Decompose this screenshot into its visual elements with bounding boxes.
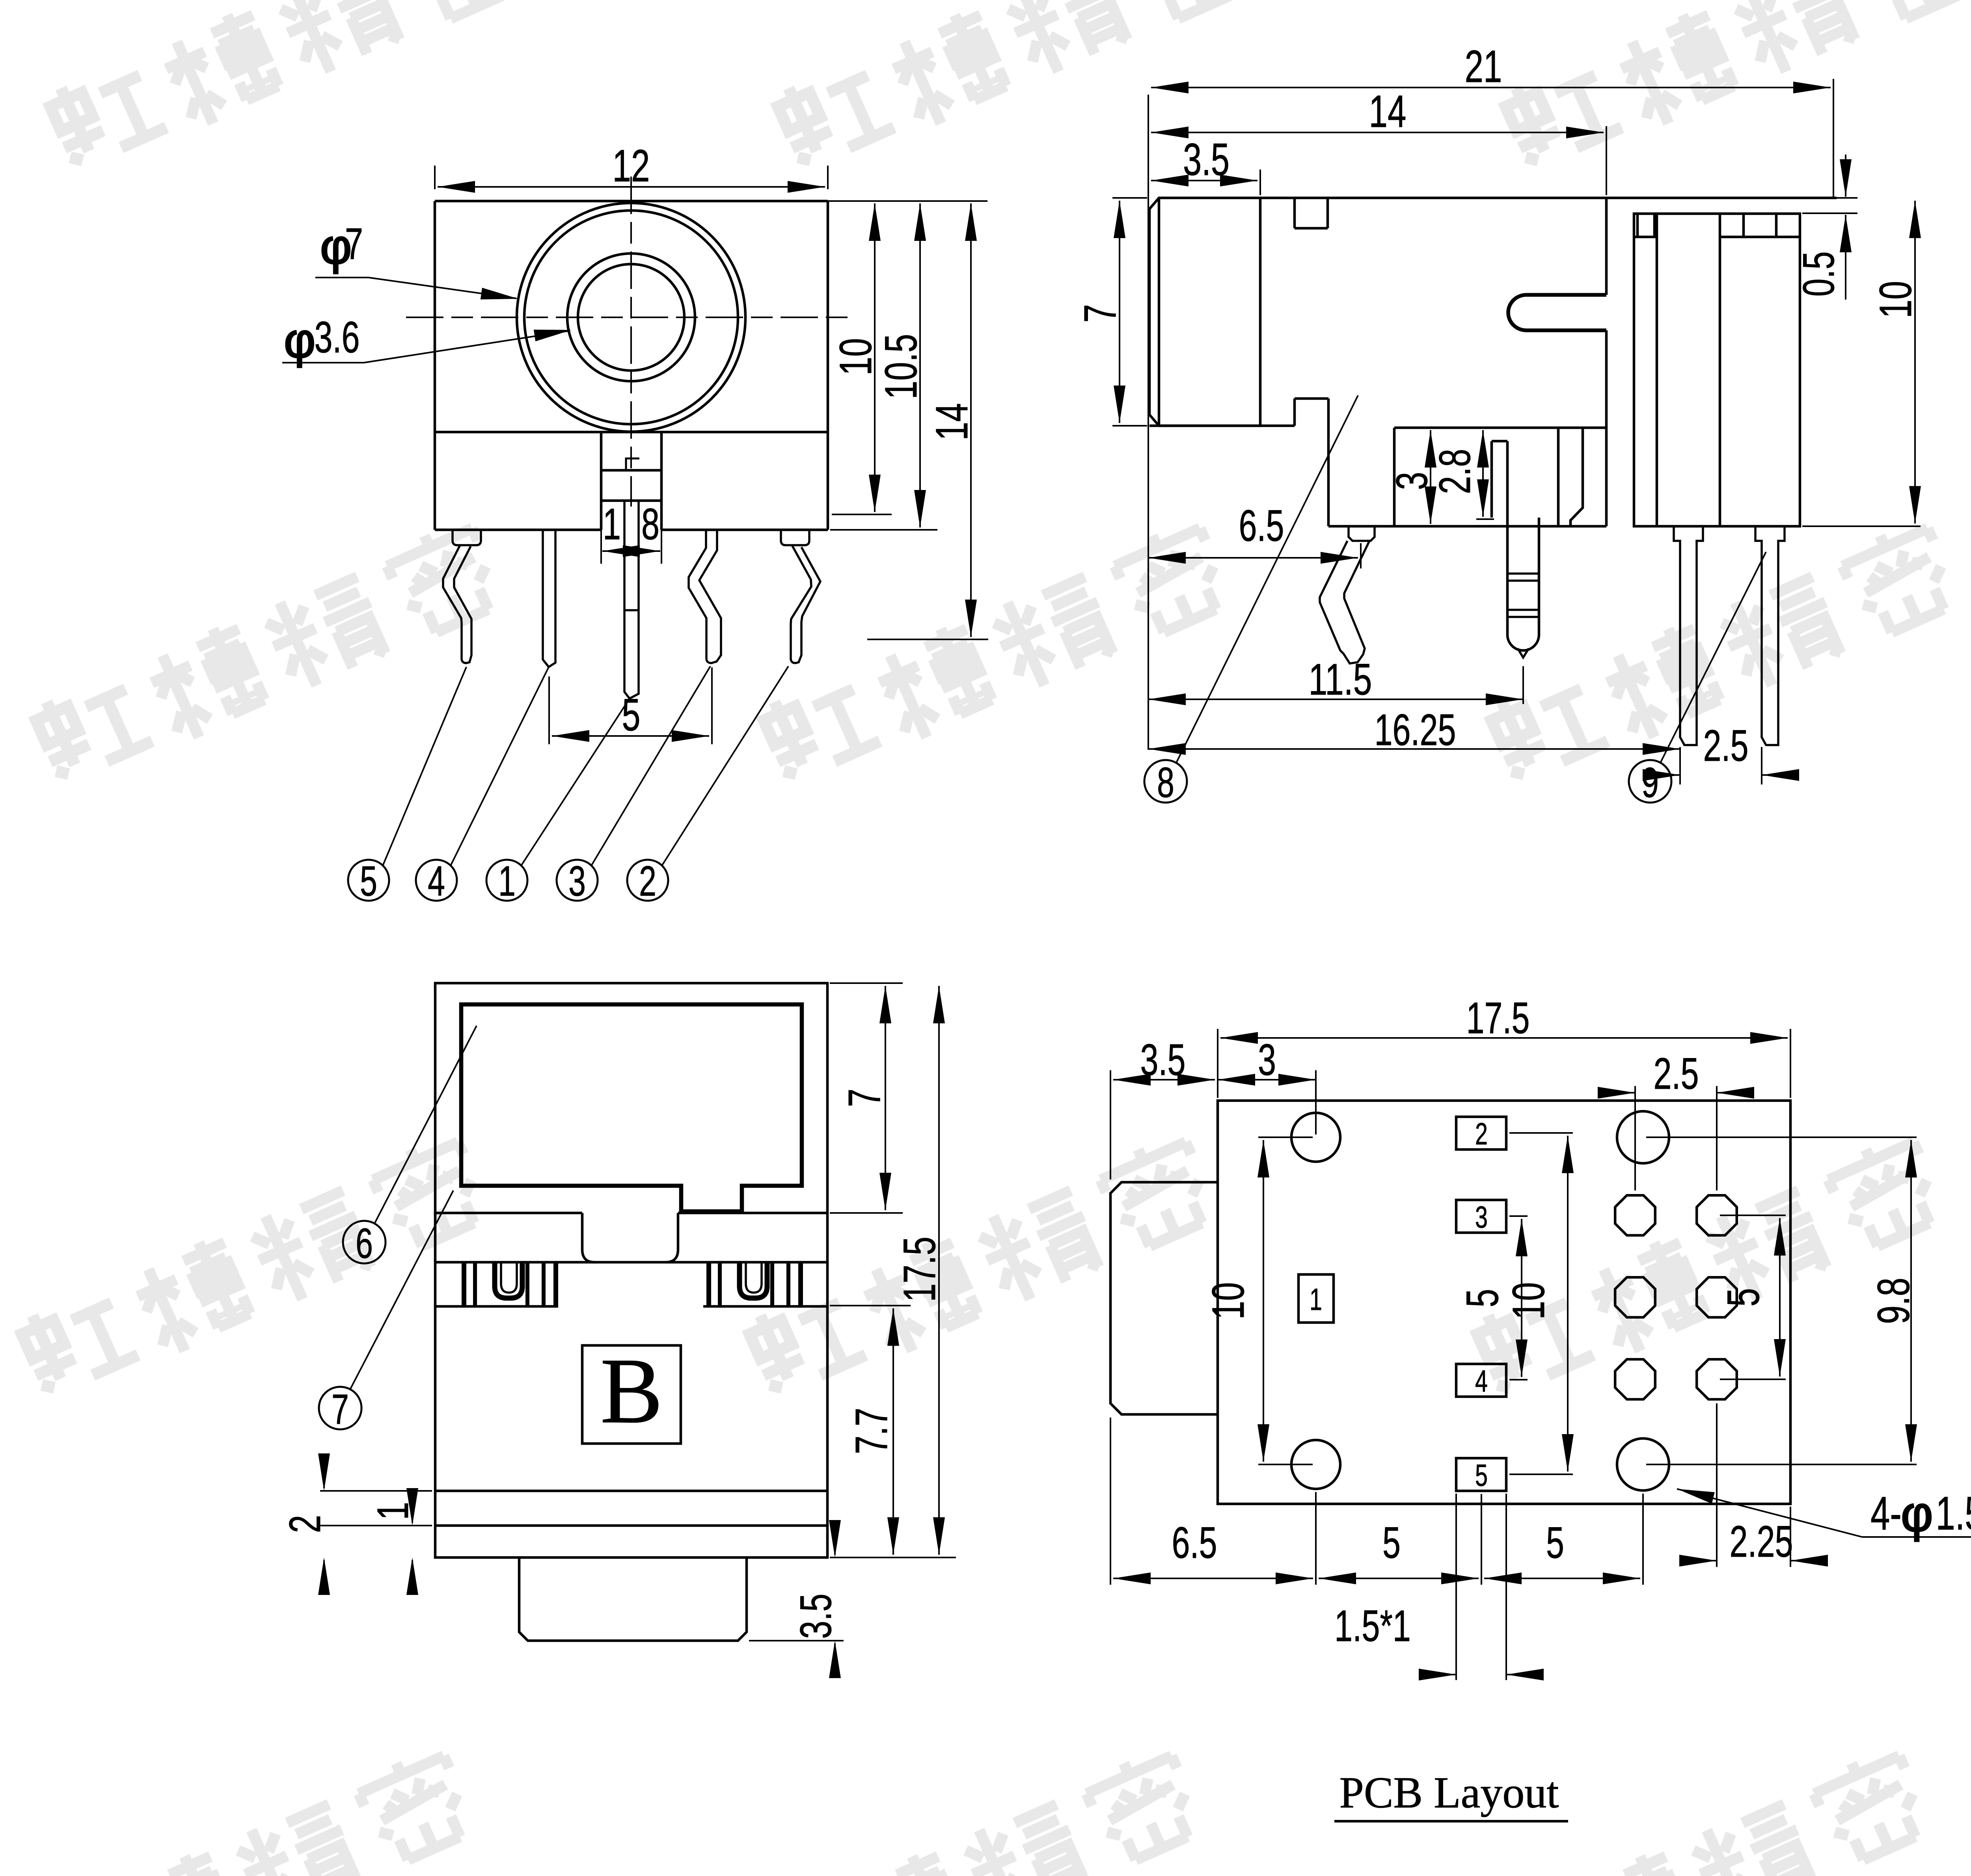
svg-text:9.8: 9.8 [1869, 1278, 1919, 1324]
svg-text:6.5: 6.5 [1172, 1518, 1217, 1567]
svg-text:φ: φ [284, 313, 315, 368]
svg-text:16.25: 16.25 [1375, 705, 1456, 754]
svg-text:B: B [600, 1339, 663, 1443]
svg-text:2.5: 2.5 [1654, 1049, 1699, 1098]
svg-text:3.5: 3.5 [1183, 134, 1230, 185]
svg-text:6: 6 [356, 1219, 373, 1267]
svg-text:PCB Layout: PCB Layout [1339, 1768, 1559, 1817]
svg-text:4-: 4- [1870, 1487, 1902, 1540]
svg-text:9: 9 [1641, 758, 1659, 806]
svg-text:5: 5 [1546, 1518, 1564, 1567]
svg-text:5: 5 [1718, 1288, 1769, 1307]
svg-text:10: 10 [831, 338, 881, 376]
svg-text:7: 7 [839, 1089, 890, 1107]
svg-text:3.5: 3.5 [791, 1594, 840, 1639]
svg-text:3: 3 [568, 857, 586, 905]
svg-text:11.5: 11.5 [1309, 655, 1372, 704]
svg-text:1: 1 [1310, 1282, 1322, 1317]
svg-text:10: 10 [1870, 281, 1921, 319]
svg-text:1.5*1: 1.5*1 [1334, 1601, 1411, 1651]
svg-text:14: 14 [1369, 86, 1407, 137]
svg-text:8: 8 [1157, 758, 1174, 806]
svg-text:3: 3 [1475, 1200, 1488, 1234]
svg-text:3.6: 3.6 [315, 313, 360, 362]
svg-text:2.5: 2.5 [1703, 721, 1749, 770]
svg-text:2: 2 [1475, 1116, 1488, 1151]
svg-text:6.5: 6.5 [1239, 501, 1284, 550]
svg-text:7: 7 [345, 219, 363, 268]
svg-text:7: 7 [332, 1385, 349, 1433]
svg-text:5: 5 [622, 690, 641, 740]
svg-text:1: 1 [368, 1502, 417, 1520]
svg-text:14: 14 [927, 403, 977, 441]
svg-text:7: 7 [1075, 304, 1125, 323]
svg-text:3: 3 [1387, 472, 1436, 490]
svg-text:3: 3 [1258, 1035, 1276, 1084]
svg-text:5: 5 [360, 857, 377, 905]
svg-text:1: 1 [603, 499, 621, 549]
svg-text:10: 10 [1503, 1282, 1554, 1320]
svg-text:7.7: 7.7 [846, 1408, 897, 1454]
svg-text:0.5: 0.5 [1794, 251, 1843, 297]
svg-text:3.5: 3.5 [1140, 1035, 1186, 1084]
svg-text:21: 21 [1465, 41, 1502, 92]
svg-text:1.5: 1.5 [1936, 1487, 1971, 1540]
svg-text:10.5: 10.5 [876, 334, 926, 399]
svg-text:10: 10 [1203, 1282, 1254, 1320]
svg-text:2.25: 2.25 [1730, 1517, 1793, 1566]
svg-text:5: 5 [1382, 1518, 1401, 1567]
svg-text:5: 5 [1475, 1458, 1488, 1492]
svg-text:2: 2 [639, 857, 656, 905]
svg-text:17.5: 17.5 [1466, 993, 1530, 1043]
svg-text:2.8: 2.8 [1430, 449, 1479, 494]
svg-text:2: 2 [280, 1515, 330, 1533]
svg-text:4: 4 [428, 857, 445, 905]
svg-text:17.5: 17.5 [894, 1237, 945, 1302]
svg-text:4: 4 [1475, 1364, 1488, 1398]
svg-text:φ: φ [1901, 1486, 1933, 1542]
svg-text:8: 8 [641, 499, 659, 549]
svg-text:1: 1 [498, 857, 516, 905]
svg-text:12: 12 [613, 141, 650, 191]
svg-text:5: 5 [1457, 1289, 1508, 1308]
